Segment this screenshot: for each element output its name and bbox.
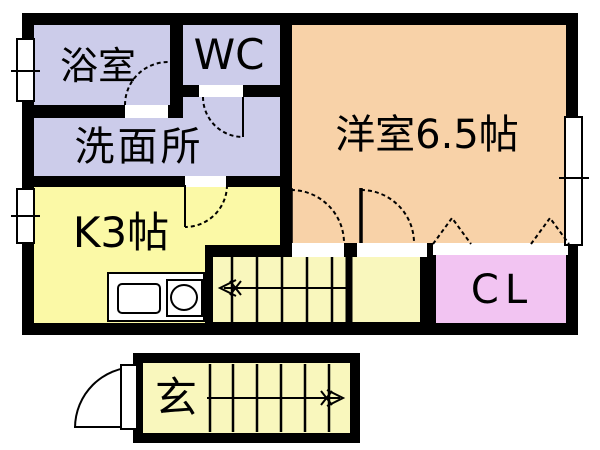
- washroom-label: 洗面所: [75, 127, 204, 167]
- bathroom-door-opening: [125, 105, 168, 118]
- western-door2-opening: [357, 243, 427, 257]
- western-door1-opening: [292, 243, 344, 257]
- kitchen-label: K3帖: [73, 212, 169, 254]
- room-washroom-annex: [183, 97, 280, 118]
- sink-icon: [117, 283, 161, 314]
- window-western-right: [564, 116, 583, 246]
- entrance-door-leaf: [120, 364, 138, 430]
- entrance-label: 玄: [155, 377, 197, 419]
- western-room-label: 洋室6.5帖: [335, 115, 519, 155]
- wc-door-opening: [199, 85, 243, 97]
- bathroom-label: 浴室: [60, 47, 136, 85]
- window-bathroom-left: [16, 38, 35, 102]
- kitchen-counter: [107, 272, 205, 322]
- window-kitchen-left: [16, 188, 35, 244]
- stove-icon: [166, 279, 203, 317]
- burner-icon: [170, 284, 198, 311]
- floor-plan-canvas: 浴室 WC 洗面所 洋室6.5帖 K3帖 CL 玄: [0, 0, 600, 450]
- washroom-kitchen-door-opening: [185, 176, 226, 187]
- room-stairwell: [213, 257, 420, 322]
- wc-label: WC: [194, 34, 265, 76]
- closet-label: CL: [471, 270, 533, 310]
- closet-door-opening: [433, 243, 568, 255]
